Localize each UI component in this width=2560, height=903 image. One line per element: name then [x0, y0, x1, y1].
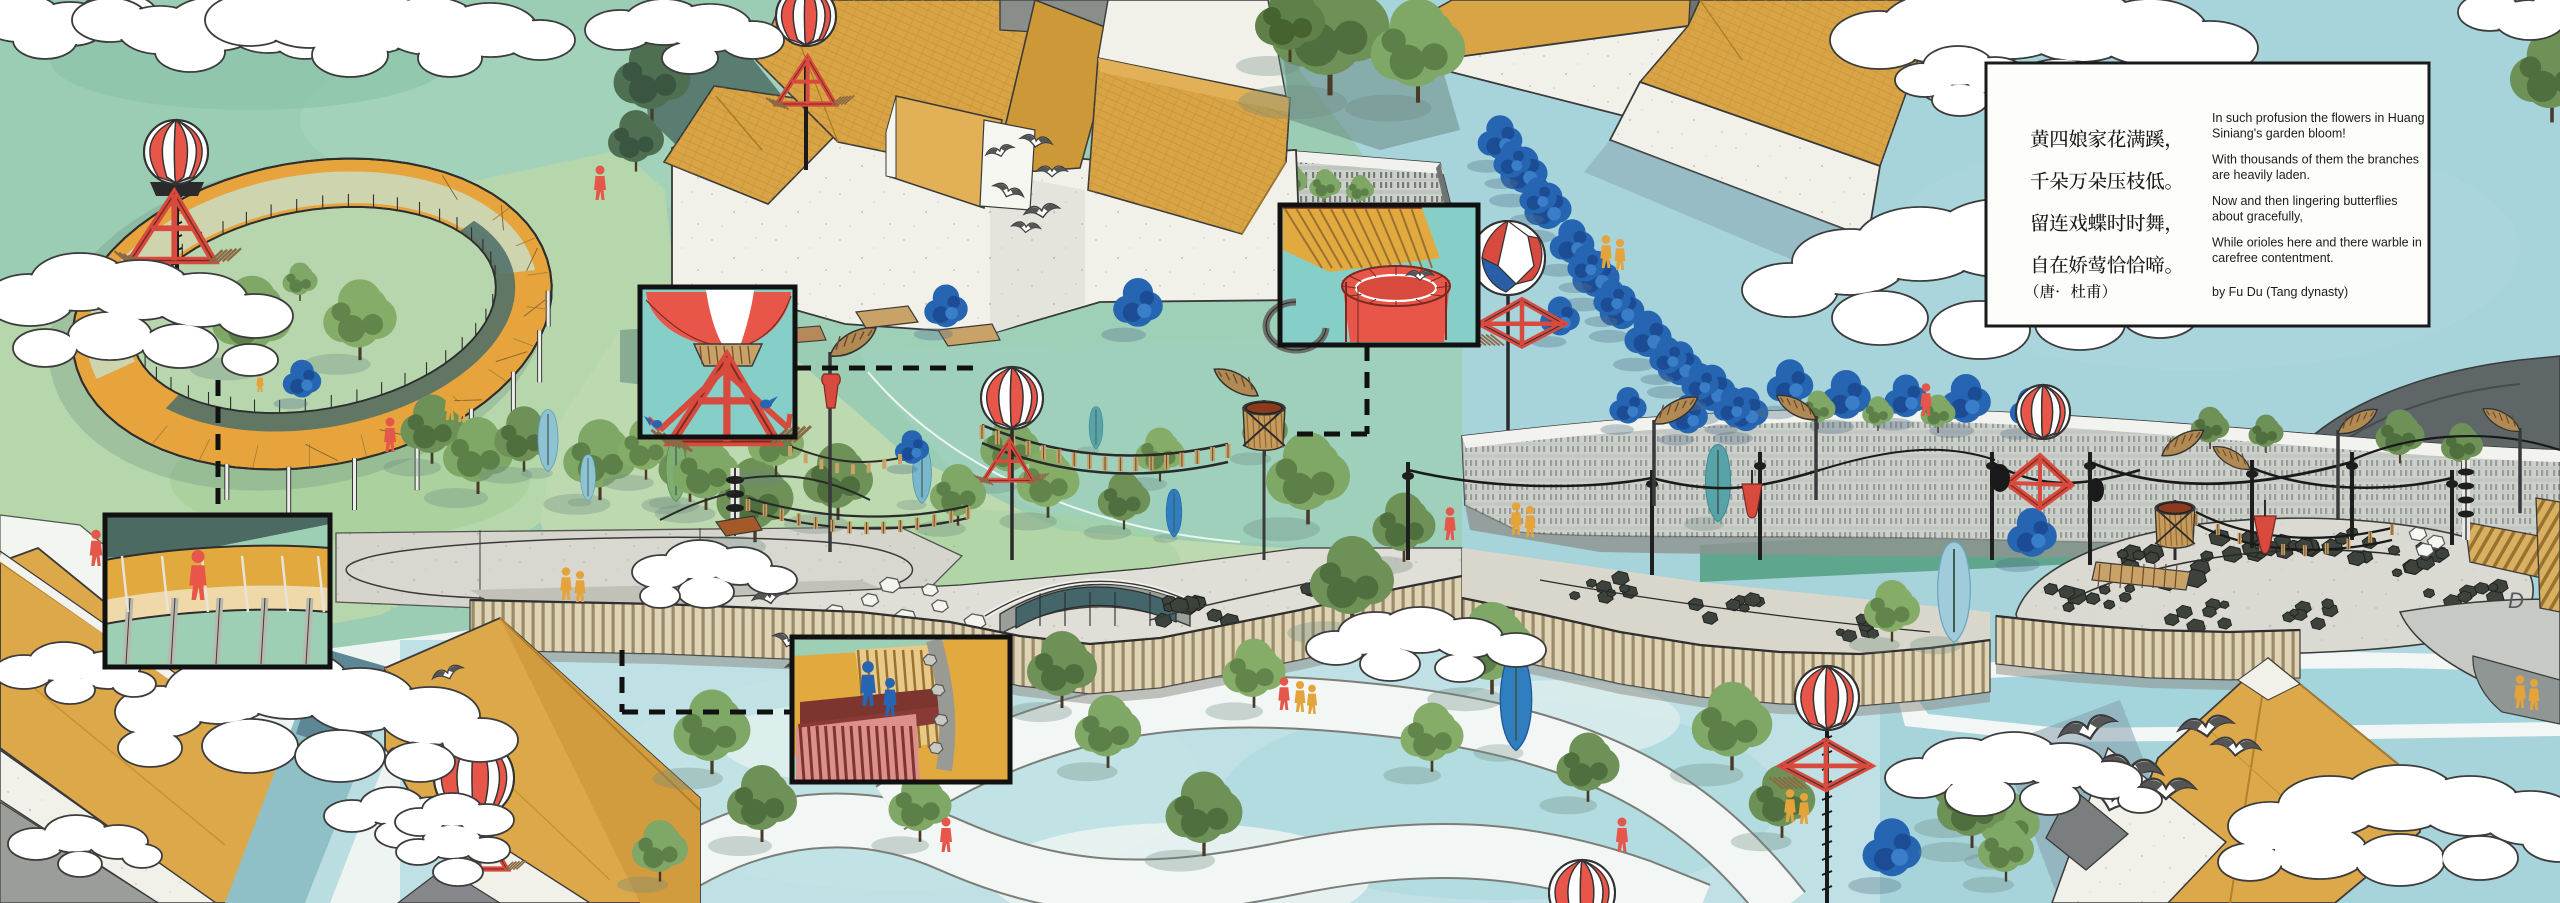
svg-text:In such profusion the flowers: In such profusion the flowers in Huang [2212, 111, 2425, 125]
svg-text:by Fu Du (Tang dynasty): by Fu Du (Tang dynasty) [2212, 285, 2348, 299]
svg-text:While orioles here and there w: While orioles here and there warble in [2212, 236, 2422, 250]
svg-text:carefree contentment.: carefree contentment. [2212, 251, 2334, 265]
svg-text:Now and then lingering butterf: Now and then lingering butterflies [2212, 194, 2398, 208]
svg-text:are heavily laden.: are heavily laden. [2212, 168, 2310, 182]
svg-text:D: D [2508, 588, 2524, 613]
svg-text:With thousands of them the bra: With thousands of them the branches [2212, 153, 2419, 167]
svg-text:about gracefully,: about gracefully, [2212, 210, 2303, 224]
svg-text:Siniang's garden bloom!: Siniang's garden bloom! [2212, 127, 2346, 141]
